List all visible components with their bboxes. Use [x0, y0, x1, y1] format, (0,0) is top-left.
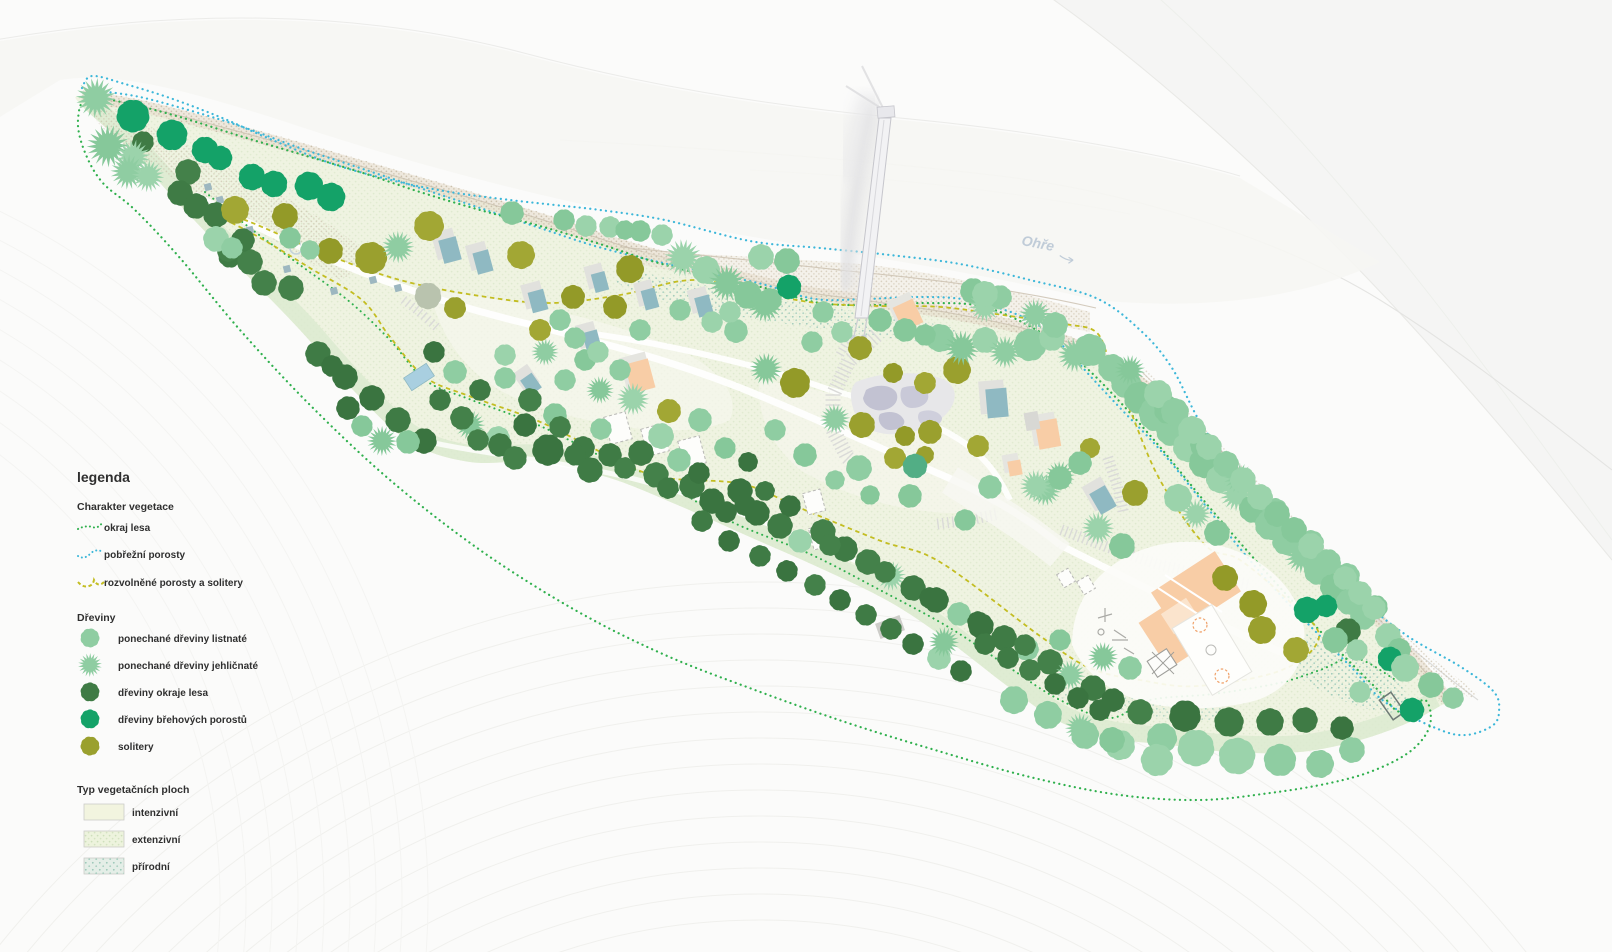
svg-text:solitery: solitery	[118, 742, 154, 753]
svg-text:intenzivní: intenzivní	[132, 808, 179, 819]
svg-text:pobřežní porosty: pobřežní porosty	[104, 550, 186, 561]
svg-text:legenda: legenda	[77, 469, 130, 485]
svg-text:ponechané dřeviny listnaté: ponechané dřeviny listnaté	[118, 634, 247, 645]
svg-text:okraj lesa: okraj lesa	[104, 523, 151, 534]
svg-text:extenzivní: extenzivní	[132, 835, 182, 846]
svg-text:Typ vegetačních ploch: Typ vegetačních ploch	[77, 784, 189, 796]
svg-text:Charakter vegetace: Charakter vegetace	[77, 501, 174, 513]
svg-text:Dřeviny: Dřeviny	[77, 612, 116, 624]
svg-text:přírodní: přírodní	[132, 862, 171, 873]
svg-text:rozvolněné porosty a solitery: rozvolněné porosty a solitery	[104, 578, 243, 589]
svg-text:dřeviny okraje lesa: dřeviny okraje lesa	[118, 688, 208, 699]
svg-text:dřeviny břehových porostů: dřeviny břehových porostů	[118, 714, 247, 726]
svg-text:ponechané dřeviny jehličnaté: ponechané dřeviny jehličnaté	[118, 661, 258, 672]
